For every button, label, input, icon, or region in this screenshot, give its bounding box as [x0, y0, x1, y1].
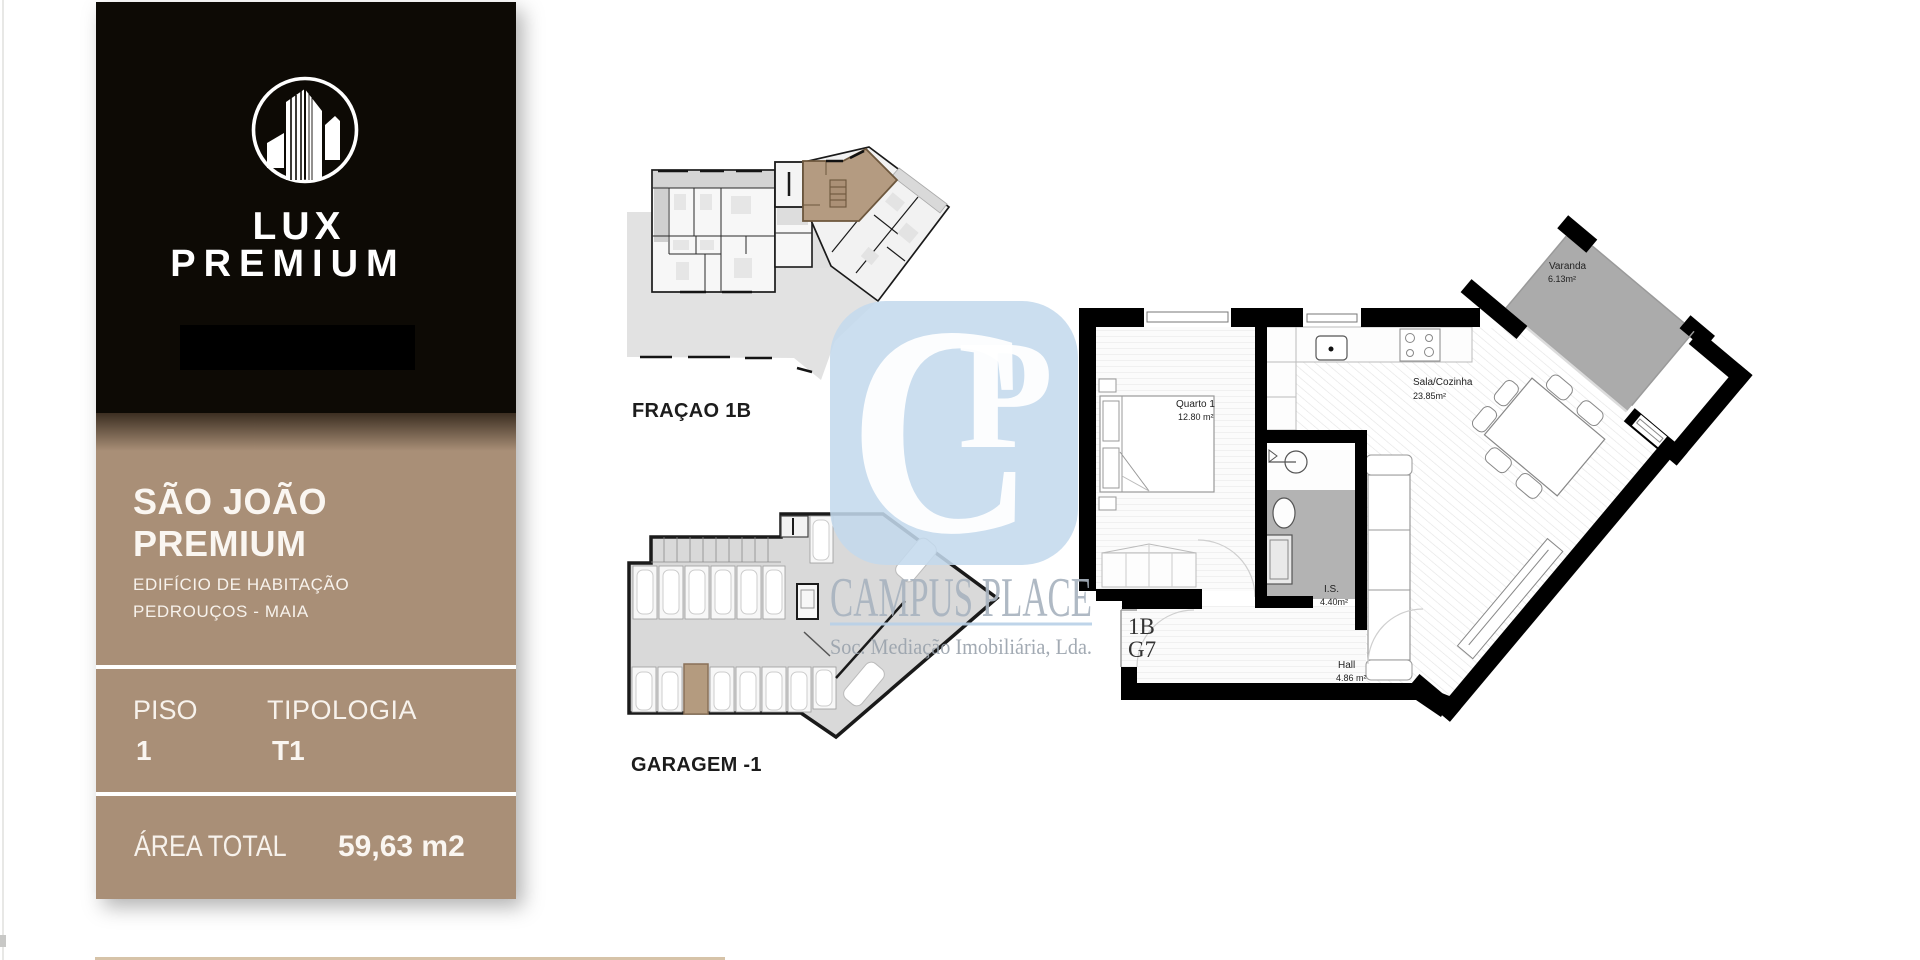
- svg-text:Quarto 1: Quarto 1: [1176, 399, 1215, 410]
- svg-text:P: P: [958, 308, 1053, 481]
- svg-text:Hall: Hall: [1338, 660, 1355, 671]
- svg-text:Soc. Mediação Imobiliária, Lda: Soc. Mediação Imobiliária, Lda.: [830, 634, 1092, 659]
- svg-text:GARAGEM -1: GARAGEM -1: [631, 754, 762, 776]
- svg-text:Sala/Cozinha: Sala/Cozinha: [1413, 377, 1473, 388]
- svg-text:23.85m²: 23.85m²: [1413, 391, 1446, 401]
- svg-text:12.80 m²: 12.80 m²: [1178, 412, 1214, 422]
- svg-text:FRAÇAO 1B: FRAÇAO 1B: [632, 400, 751, 422]
- svg-text:G7: G7: [1128, 637, 1156, 662]
- svg-text:6.13m²: 6.13m²: [1548, 274, 1576, 284]
- svg-text:Varanda: Varanda: [1549, 261, 1587, 272]
- svg-text:CAMPUS PLACE: CAMPUS PLACE: [830, 567, 1092, 629]
- svg-text:4.86 m²: 4.86 m²: [1336, 673, 1367, 683]
- svg-text:I.S.: I.S.: [1324, 584, 1339, 595]
- svg-text:1B: 1B: [1128, 614, 1155, 639]
- svg-text:4.40m²: 4.40m²: [1320, 597, 1348, 607]
